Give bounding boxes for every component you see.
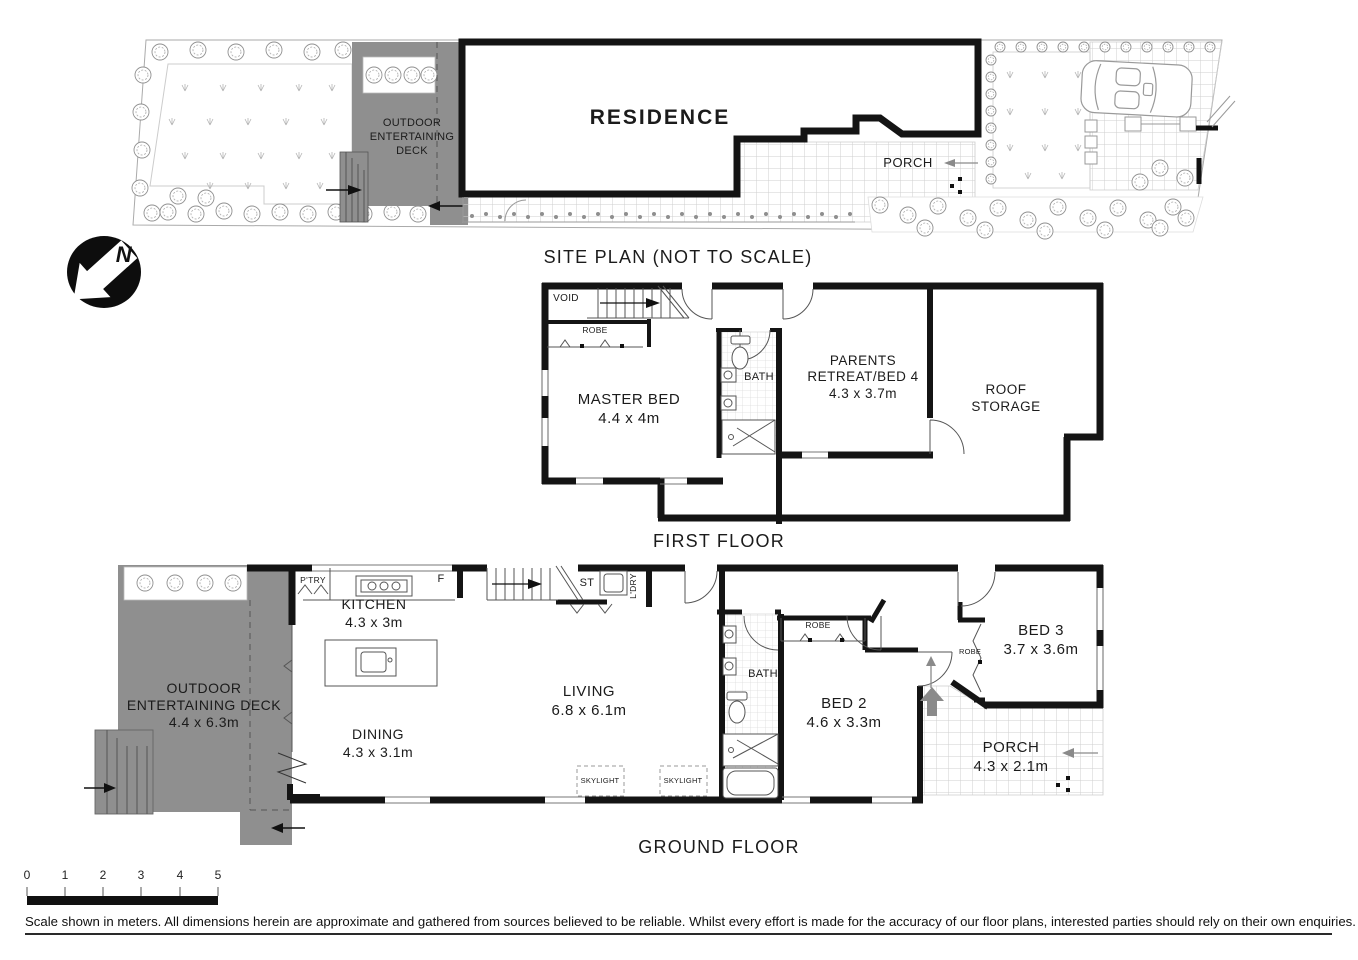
skylight-label-2: SKYLIGHT xyxy=(664,777,703,785)
disclaimer-text: Scale shown in meters. All dimensions he… xyxy=(25,914,1332,935)
bed3-label: BED 3 xyxy=(1018,623,1064,640)
master-bed-dims: 4.4 x 4m xyxy=(598,411,660,428)
kitchen-label: KITCHEN xyxy=(342,597,407,613)
dining-dims: 4.3 x 3.1m xyxy=(343,745,413,761)
fridge-label: F xyxy=(437,573,444,585)
robe-label-first-floor: ROBE xyxy=(582,326,607,336)
deck-label-line1: OUTDOOR xyxy=(166,681,241,697)
residence-label: RESIDENCE xyxy=(590,106,731,130)
bath-label-ground-floor: BATH xyxy=(748,668,778,680)
robe-bed2-label: ROBE xyxy=(805,621,830,631)
kitchen-island xyxy=(325,640,437,686)
kitchen-dims: 4.3 x 3m xyxy=(345,615,403,631)
bed2-dims: 4.6 x 3.3m xyxy=(806,715,881,732)
deck-label-line2: ENTERTAINING DECK xyxy=(127,698,281,714)
scale-tick-4: 4 xyxy=(177,868,184,882)
porch-label-ground: PORCH xyxy=(983,740,1040,757)
scale-tick-2: 2 xyxy=(100,868,107,882)
bath-label-first-floor: BATH xyxy=(744,371,774,383)
porch-dims-ground: 4.3 x 2.1m xyxy=(973,759,1048,776)
site-plan-drawing xyxy=(132,40,1235,239)
site-porch-label: PORCH xyxy=(883,156,932,171)
master-bed-label: MASTER BED xyxy=(578,392,681,409)
site-deck-label-line1: OUTDOOR xyxy=(383,117,441,129)
void-label: VOID xyxy=(553,293,579,304)
bed3-dims: 3.7 x 3.6m xyxy=(1003,642,1078,659)
scale-tick-0: 0 xyxy=(24,868,31,882)
parents-retreat-line2: RETREAT/BED 4 xyxy=(807,369,918,384)
floorplan-page: RESIDENCE OUTDOOR ENTERTAINING DECK PORC… xyxy=(0,0,1358,960)
scale-tick-5: 5 xyxy=(215,868,222,882)
laundry-fixtures xyxy=(570,571,627,613)
north-letter: N xyxy=(116,243,132,268)
stairs-first-floor xyxy=(587,286,689,318)
robe-bed3-label: ROBE xyxy=(959,648,981,656)
living-dims: 6.8 x 6.1m xyxy=(551,703,626,720)
pantry-label: P'TRY xyxy=(300,576,326,586)
car-icon xyxy=(1080,60,1193,118)
roof-storage-line1: ROOF xyxy=(986,382,1027,397)
deck-dims: 4.4 x 6.3m xyxy=(169,715,239,731)
stairs-ground-floor xyxy=(487,566,583,600)
dining-label: DINING xyxy=(352,727,404,743)
skylight-label-1: SKYLIGHT xyxy=(581,777,620,785)
first-floor-title: FIRST FLOOR xyxy=(653,531,785,551)
living-label: LIVING xyxy=(563,684,615,701)
site-plan-title: SITE PLAN (NOT TO SCALE) xyxy=(544,247,813,267)
bed2-label: BED 2 xyxy=(821,696,867,713)
parents-retreat-line1: PARENTS xyxy=(830,353,896,368)
stair-store-label: ST xyxy=(580,577,595,589)
parents-retreat-dims: 4.3 x 3.7m xyxy=(829,386,897,401)
site-deck-label-line3: DECK xyxy=(396,145,428,157)
floorplan-linework xyxy=(0,0,1358,960)
scale-tick-1: 1 xyxy=(62,868,69,882)
scale-bar xyxy=(27,887,218,905)
stairs-up-arrow-icon xyxy=(646,298,660,308)
laundry-label: L'DRY xyxy=(629,573,639,599)
roof-storage-line2: STORAGE xyxy=(971,399,1040,414)
stairs-arrow-icon xyxy=(528,579,542,589)
ground-floor-title: GROUND FLOOR xyxy=(638,837,799,857)
scale-tick-3: 3 xyxy=(138,868,145,882)
site-deck-label-line2: ENTERTAINING xyxy=(370,131,454,143)
